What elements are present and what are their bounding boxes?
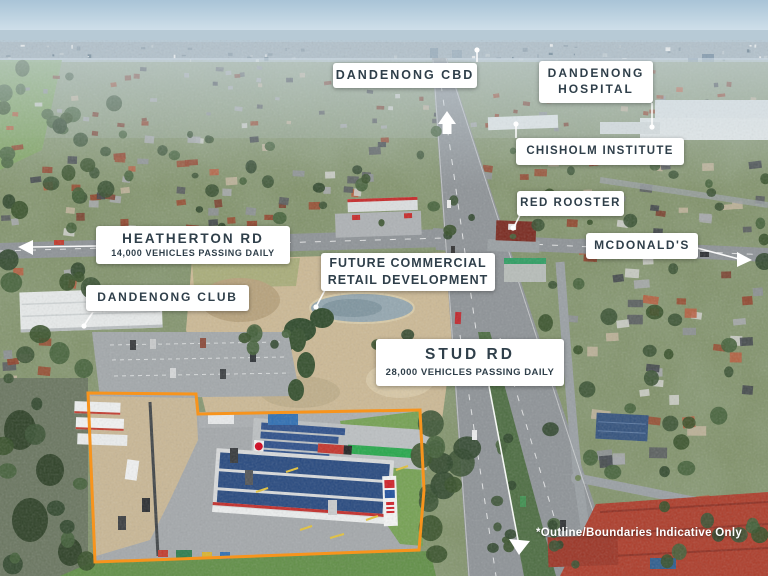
chisholm-pointer-dot <box>513 121 518 126</box>
label-line1: FUTURE COMMERCIAL <box>329 255 486 273</box>
label-mcdonalds: MCDONALD'S <box>586 233 698 259</box>
label-title: STUD RD <box>425 345 515 365</box>
label-title: HEATHERTON RD <box>122 230 264 248</box>
label-text: DANDENONG CLUB <box>97 290 238 306</box>
label-text: CHISHOLM INSTITUTE <box>526 144 673 159</box>
red-rooster-pointer-dot <box>510 225 515 230</box>
label-subtitle: 14,000 VEHICLES PASSING DAILY <box>111 248 274 260</box>
label-dandenong-club: DANDENONG CLUB <box>86 285 249 311</box>
label-line1: DANDENONG <box>548 66 645 82</box>
aerial-photo: DANDENONG CBD DANDENONG HOSPITAL CHISHOL… <box>0 0 768 576</box>
label-dandenong-cbd: DANDENONG CBD <box>333 63 477 88</box>
label-future-development: FUTURE COMMERCIAL RETAIL DEVELOPMENT <box>321 253 495 291</box>
label-line2: HOSPITAL <box>558 82 634 98</box>
label-stud-rd: STUD RD 28,000 VEHICLES PASSING DAILY <box>376 339 564 386</box>
future-dev-pointer-dot <box>313 304 318 309</box>
label-red-rooster: RED ROOSTER <box>517 191 624 216</box>
hospital-pointer-dot <box>649 124 654 129</box>
label-heatherton-rd: HEATHERTON RD 14,000 VEHICLES PASSING DA… <box>96 226 290 264</box>
label-dandenong-hospital: DANDENONG HOSPITAL <box>539 61 653 103</box>
club-pointer-dot <box>81 323 86 328</box>
boundary-disclaimer: *Outline/Boundaries Indicative Only <box>536 527 742 539</box>
label-text: RED ROOSTER <box>520 196 621 211</box>
label-text: DANDENONG CBD <box>336 67 475 83</box>
cbd-pointer-dot <box>474 47 479 52</box>
heatherton-pointer-line <box>32 246 96 247</box>
label-text: MCDONALD'S <box>594 238 690 254</box>
label-line2: RETAIL DEVELOPMENT <box>328 272 489 290</box>
label-chisholm-institute: CHISHOLM INSTITUTE <box>516 138 684 165</box>
label-subtitle: 28,000 VEHICLES PASSING DAILY <box>386 367 555 379</box>
